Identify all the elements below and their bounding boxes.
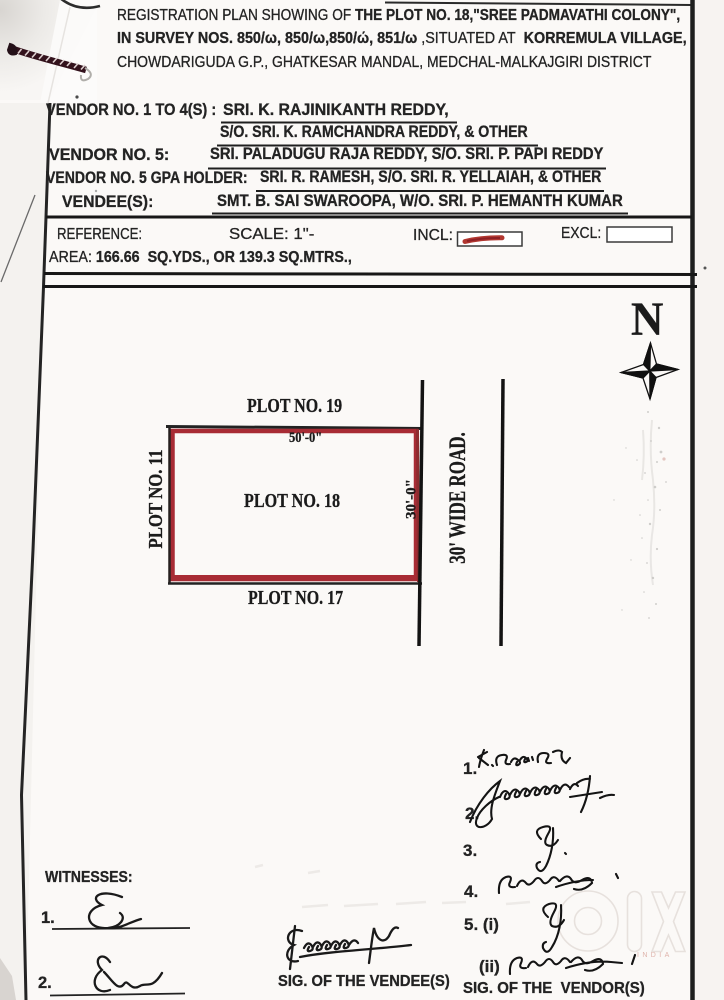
svg-text:INDIA: INDIA [637, 952, 673, 959]
